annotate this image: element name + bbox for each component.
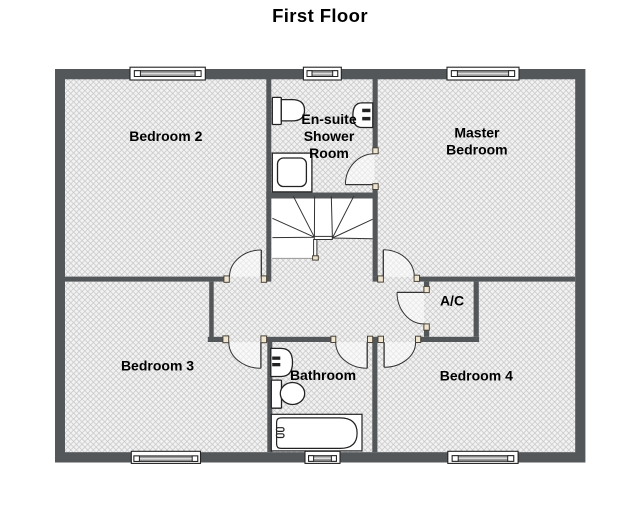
svg-text:A/C: A/C [440, 293, 464, 309]
svg-text:Room: Room [309, 145, 349, 161]
svg-text:First Floor: First Floor [272, 5, 368, 26]
svg-text:Shower: Shower [304, 128, 355, 144]
svg-text:Bedroom: Bedroom [446, 141, 507, 157]
svg-text:Master: Master [454, 125, 500, 141]
svg-text:Bathroom: Bathroom [290, 367, 356, 383]
svg-text:Bedroom 3: Bedroom 3 [121, 358, 194, 374]
svg-text:Bedroom 4: Bedroom 4 [440, 367, 513, 383]
svg-text:En-suite: En-suite [301, 111, 356, 127]
svg-text:Bedroom 2: Bedroom 2 [129, 128, 202, 144]
